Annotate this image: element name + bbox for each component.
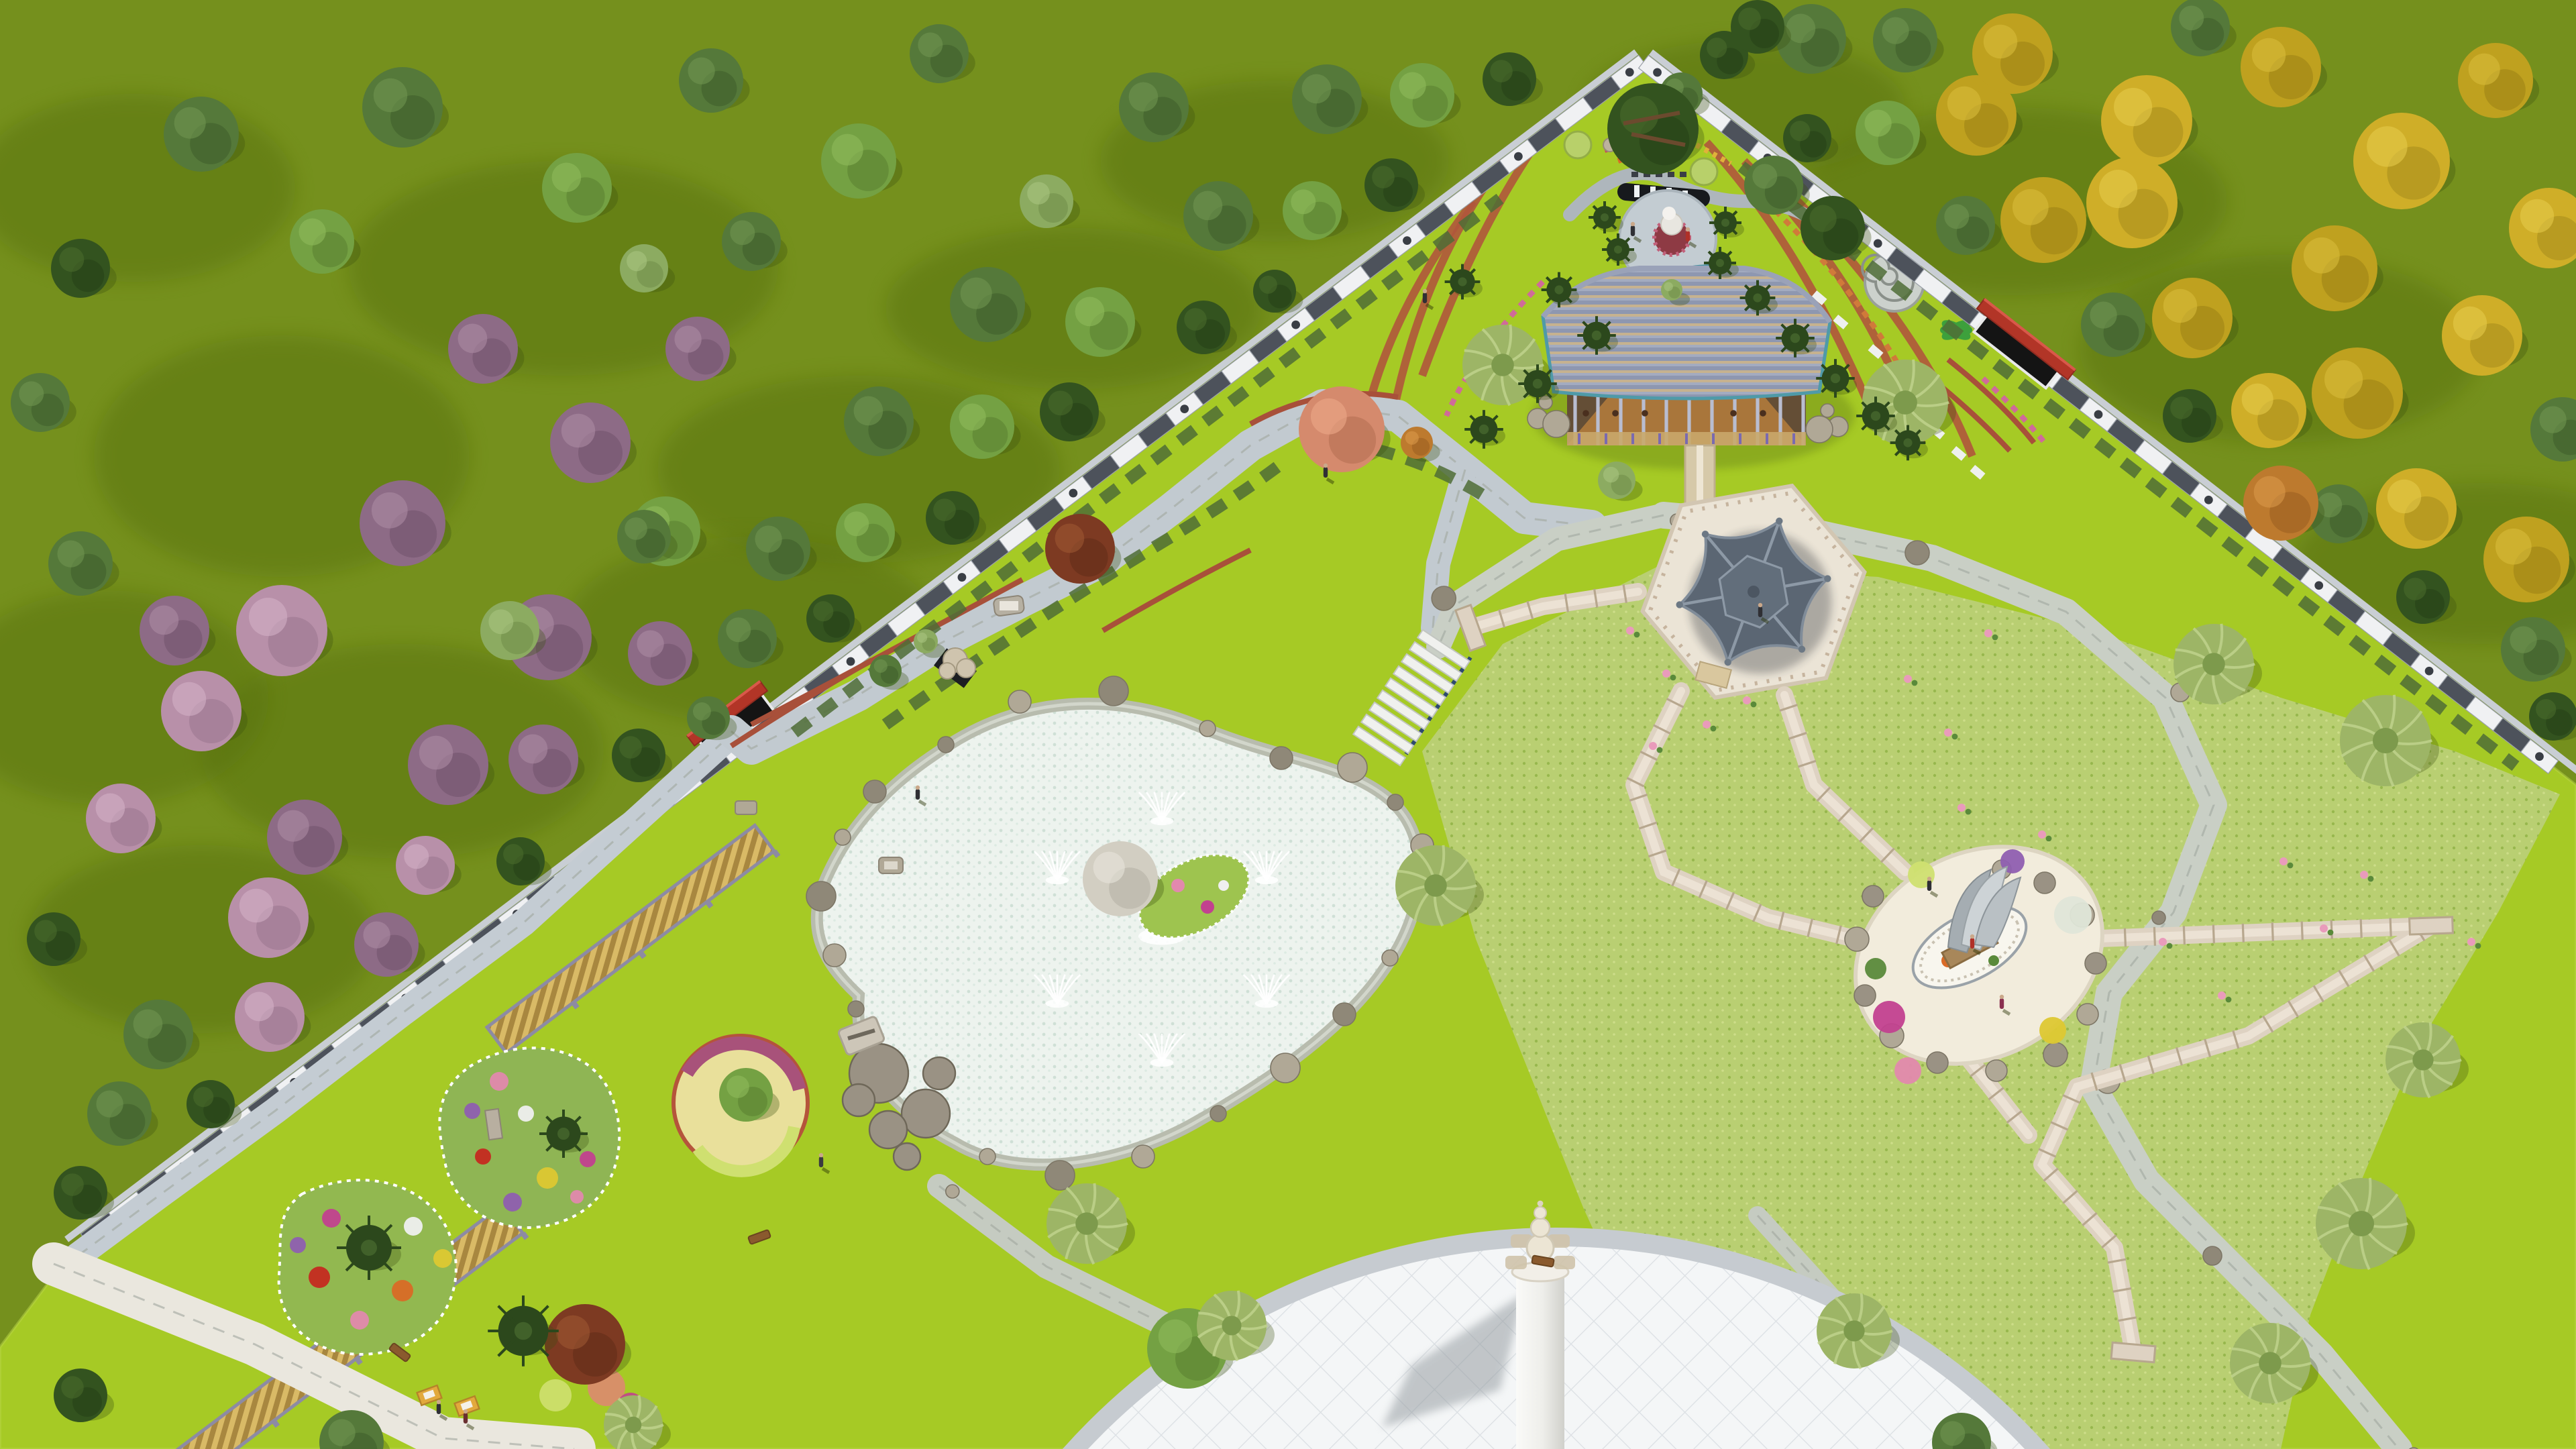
forest-tree-dg bbox=[2529, 692, 2576, 741]
person bbox=[1758, 606, 1762, 617]
person bbox=[464, 1413, 468, 1424]
person bbox=[1927, 880, 1931, 891]
conifer-tree bbox=[488, 1295, 559, 1366]
ornamental-column bbox=[1516, 1272, 1564, 1449]
person bbox=[1970, 938, 1974, 949]
person bbox=[1686, 231, 1690, 241]
person bbox=[819, 1157, 823, 1167]
person bbox=[1631, 225, 1635, 236]
scene-canvas bbox=[0, 0, 2576, 1449]
person bbox=[2000, 998, 2004, 1009]
person bbox=[1423, 292, 1427, 303]
kidney-flower-bed bbox=[439, 1048, 619, 1228]
person bbox=[1324, 467, 1328, 478]
person bbox=[916, 789, 920, 800]
conifer-tree bbox=[337, 1216, 401, 1280]
person bbox=[437, 1403, 441, 1414]
garden-aerial-render bbox=[0, 0, 2576, 1449]
